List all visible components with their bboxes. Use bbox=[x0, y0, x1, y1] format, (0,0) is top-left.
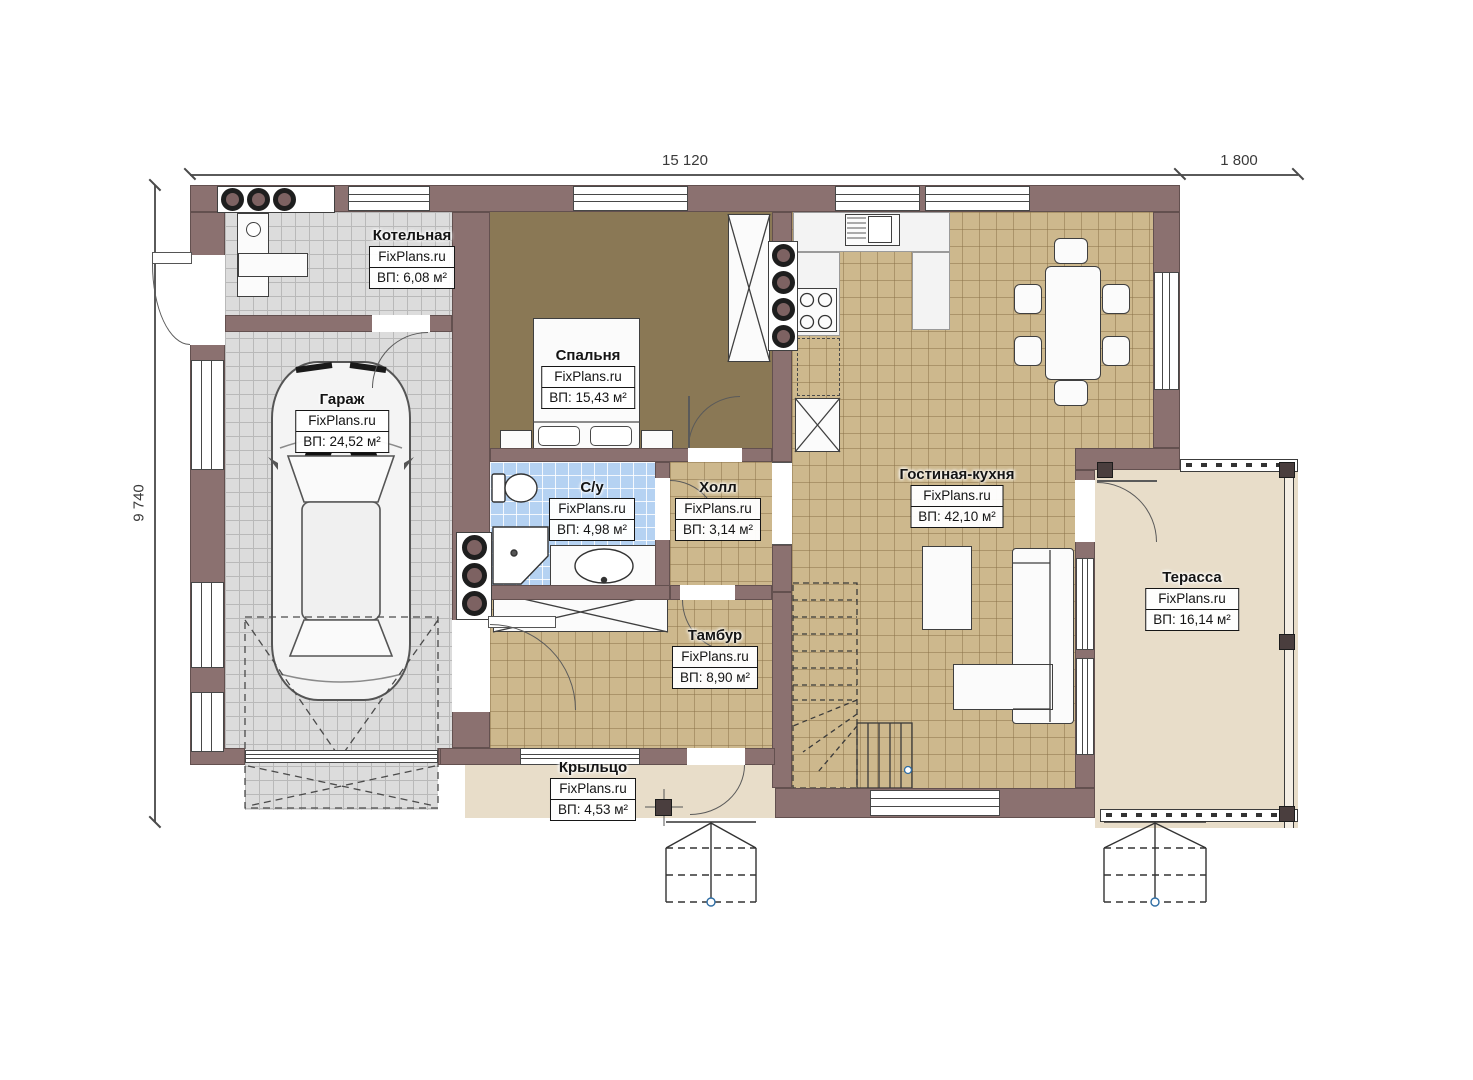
chair bbox=[1014, 284, 1042, 314]
room-label-vestibule: Тамбур FixPlans.ru ВП: 8,90 м² bbox=[672, 627, 758, 689]
garage-flue bbox=[462, 591, 487, 616]
watermark: FixPlans.ru bbox=[550, 778, 636, 800]
door-gap bbox=[680, 585, 735, 600]
appliance-space bbox=[797, 338, 840, 396]
room-label-living: Гостиная-кухня FixPlans.ru ВП: 42,10 м² bbox=[900, 466, 1015, 528]
watermark: FixPlans.ru bbox=[1145, 588, 1239, 610]
room-area: ВП: 16,14 м² bbox=[1145, 610, 1239, 631]
window bbox=[573, 186, 688, 211]
pillow bbox=[590, 426, 632, 446]
door-gap bbox=[190, 255, 225, 345]
wall bbox=[772, 592, 792, 788]
vanity bbox=[550, 545, 658, 588]
watermark: FixPlans.ru bbox=[295, 410, 389, 432]
room-area: ВП: 42,10 м² bbox=[910, 507, 1004, 528]
door-gap bbox=[687, 748, 745, 765]
window bbox=[1154, 272, 1179, 390]
garage-flue bbox=[462, 563, 487, 588]
nightstand bbox=[641, 430, 673, 450]
door-gap bbox=[372, 315, 430, 332]
chair bbox=[1102, 284, 1130, 314]
exterior-steps-left bbox=[666, 822, 756, 906]
room-label-hall: Холл FixPlans.ru ВП: 3,14 м² bbox=[675, 479, 761, 541]
room-area: ВП: 4,53 м² bbox=[550, 800, 636, 821]
wall bbox=[490, 585, 670, 600]
room-label-bedroom: Спальня FixPlans.ru ВП: 15,43 м² bbox=[541, 347, 635, 409]
kitchen-flue bbox=[772, 298, 795, 321]
room-label-boiler: Котельная FixPlans.ru ВП: 6,08 м² bbox=[369, 227, 455, 289]
watermark: FixPlans.ru bbox=[675, 498, 761, 520]
kitchen-flue bbox=[772, 325, 795, 348]
window bbox=[191, 692, 224, 752]
window bbox=[1076, 558, 1094, 650]
room-area: ВП: 6,08 м² bbox=[369, 268, 455, 289]
room-name: Спальня bbox=[541, 347, 635, 364]
terrace-post bbox=[1279, 462, 1295, 478]
window bbox=[925, 186, 1030, 211]
pillow bbox=[538, 426, 580, 446]
room-name: С/у bbox=[549, 479, 635, 496]
terrace-post bbox=[1097, 462, 1113, 478]
boiler-flue bbox=[221, 188, 244, 211]
terrace-post bbox=[1279, 634, 1295, 650]
chair bbox=[1054, 238, 1088, 264]
door-arc bbox=[152, 264, 190, 345]
room-label-porch: Крыльцо FixPlans.ru ВП: 4,53 м² bbox=[550, 759, 636, 821]
exterior-steps-right bbox=[1104, 822, 1206, 906]
boiler-dial bbox=[246, 222, 261, 237]
terrace-beam-bottom bbox=[1100, 809, 1298, 822]
watermark: FixPlans.ru bbox=[549, 498, 635, 520]
room-name: Котельная bbox=[369, 227, 455, 244]
room-name: Гостиная-кухня bbox=[900, 466, 1015, 483]
wall bbox=[772, 545, 792, 592]
boiler-flue bbox=[247, 188, 270, 211]
dim-line-top-main bbox=[190, 174, 1180, 176]
door-gap bbox=[1075, 480, 1095, 542]
tv-stand bbox=[922, 546, 972, 630]
stove bbox=[797, 288, 837, 332]
kitchen-flue bbox=[772, 244, 795, 267]
room-area: ВП: 4,98 м² bbox=[549, 520, 635, 541]
room-label-terrace: Терасса FixPlans.ru ВП: 16,14 м² bbox=[1145, 569, 1239, 631]
room-area: ВП: 15,43 м² bbox=[541, 388, 635, 409]
room-area: ВП: 3,14 м² bbox=[675, 520, 761, 541]
door-gap bbox=[655, 478, 670, 540]
chair bbox=[1102, 336, 1130, 366]
room-name: Терасса bbox=[1145, 569, 1239, 586]
garage-door bbox=[245, 750, 438, 763]
dim-width-main: 15 120 bbox=[658, 152, 712, 169]
sink-basin bbox=[868, 216, 892, 243]
garage-flue bbox=[462, 535, 487, 560]
boiler-flue bbox=[273, 188, 296, 211]
cased-opening bbox=[772, 462, 792, 545]
fridge bbox=[795, 398, 840, 452]
door-gap bbox=[688, 448, 742, 462]
dim-width-terrace: 1 800 bbox=[1216, 152, 1262, 169]
window bbox=[348, 186, 430, 211]
window bbox=[870, 790, 1000, 816]
dining-table bbox=[1045, 266, 1101, 380]
kitchen-flue bbox=[772, 271, 795, 294]
room-name: Крыльцо bbox=[550, 759, 636, 776]
watermark: FixPlans.ru bbox=[672, 646, 758, 668]
porch-column bbox=[655, 799, 672, 816]
room-area: ВП: 8,90 м² bbox=[672, 668, 758, 689]
watermark: FixPlans.ru bbox=[369, 246, 455, 268]
room-label-bathroom: С/у FixPlans.ru ВП: 4,98 м² bbox=[549, 479, 635, 541]
wall bbox=[1075, 448, 1180, 470]
wardrobe bbox=[728, 214, 770, 362]
watermark: FixPlans.ru bbox=[910, 485, 1004, 507]
door-gap bbox=[452, 620, 490, 712]
dim-line-top-terrace bbox=[1180, 174, 1298, 176]
room-name: Тамбур bbox=[672, 627, 758, 644]
window bbox=[191, 582, 224, 668]
room-area: ВП: 24,52 м² bbox=[295, 432, 389, 453]
watermark: FixPlans.ru bbox=[541, 366, 635, 388]
chair bbox=[1014, 336, 1042, 366]
door-leaf bbox=[688, 396, 690, 448]
window bbox=[1076, 658, 1094, 755]
window bbox=[835, 186, 920, 211]
kitchen-peninsula bbox=[912, 252, 950, 330]
nightstand bbox=[500, 430, 532, 450]
terrace-post bbox=[1279, 806, 1295, 822]
room-name: Холл bbox=[675, 479, 761, 496]
boiler-counter bbox=[238, 253, 308, 277]
floor-plan: 15 120 1 800 9 740 bbox=[0, 0, 1473, 1080]
chair bbox=[1054, 380, 1088, 406]
window bbox=[191, 360, 224, 470]
dim-height: 9 740 bbox=[131, 480, 148, 526]
coffee-table bbox=[953, 664, 1053, 710]
room-label-garage: Гараж FixPlans.ru ВП: 24,52 м² bbox=[295, 391, 389, 453]
room-name: Гараж bbox=[295, 391, 389, 408]
door-leaf bbox=[152, 252, 192, 264]
